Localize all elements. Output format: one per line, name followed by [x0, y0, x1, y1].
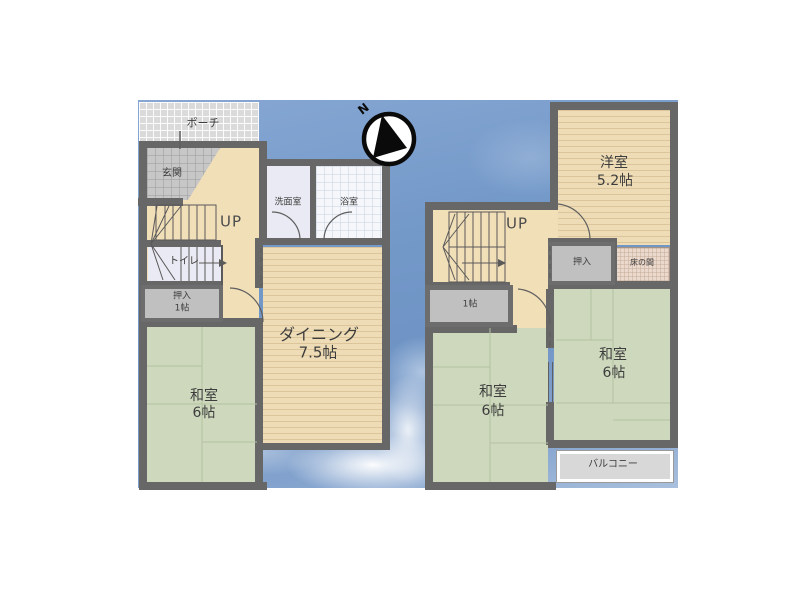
wall [546, 289, 554, 348]
wall [138, 198, 183, 206]
label-washitsu-1f: 和室 [190, 389, 218, 403]
label-washitsu-1f-size: 6帖 [193, 406, 216, 420]
wall [257, 443, 390, 450]
hall-2f-upper [433, 210, 558, 238]
label-stairs-2f: UP [506, 217, 528, 232]
label-dining-size: 7.5帖 [299, 346, 338, 361]
label-closet-1f-size: 1帖 [175, 305, 190, 314]
label-washitsu-2f-left-size: 6帖 [482, 404, 505, 418]
label-washitsu-2f-left: 和室 [479, 385, 507, 399]
label-washitsu-2f-right: 和室 [599, 348, 627, 362]
wall [382, 159, 390, 450]
label-storage-1jo: 1帖 [463, 301, 478, 310]
wall [548, 440, 678, 448]
label-closet-2f: 押入 [573, 259, 591, 268]
label-bathroom: 浴室 [340, 199, 358, 208]
wall [425, 482, 556, 490]
label-yoshitsu: 洋室 [600, 156, 628, 170]
wall [425, 202, 558, 210]
wall [139, 141, 267, 148]
wall [425, 202, 433, 490]
label-tokonoma: 床の間 [630, 259, 654, 267]
label-porch: ポーチ [187, 118, 220, 129]
wall [263, 238, 382, 245]
label-washroom: 洗面室 [274, 199, 301, 208]
label-stairs-1f: UP [220, 215, 242, 230]
label-balcony: バルコニー [588, 460, 638, 470]
wall [550, 102, 678, 110]
floorplan-image: N ポーチ 玄関 UP 洗面室 浴室 トイレ 押入 1帖 ダイニング 7.5帖 … [0, 0, 800, 600]
label-washitsu-2f-right-size: 6帖 [603, 366, 626, 380]
label-dining: ダイニング [279, 327, 359, 343]
wall [546, 402, 554, 445]
wall [139, 240, 221, 247]
label-closet-1f: 押入 [173, 293, 191, 302]
wall [255, 322, 263, 490]
label-toilet: トイレ [169, 257, 199, 267]
wall [550, 110, 558, 210]
label-entrance: 玄関 [162, 169, 182, 179]
label-yoshitsu-size: 5.2帖 [597, 174, 633, 188]
wall [670, 102, 678, 445]
wall [259, 166, 267, 240]
wall [139, 482, 267, 490]
wall [310, 166, 316, 240]
wall [255, 238, 263, 288]
wall [259, 159, 390, 166]
